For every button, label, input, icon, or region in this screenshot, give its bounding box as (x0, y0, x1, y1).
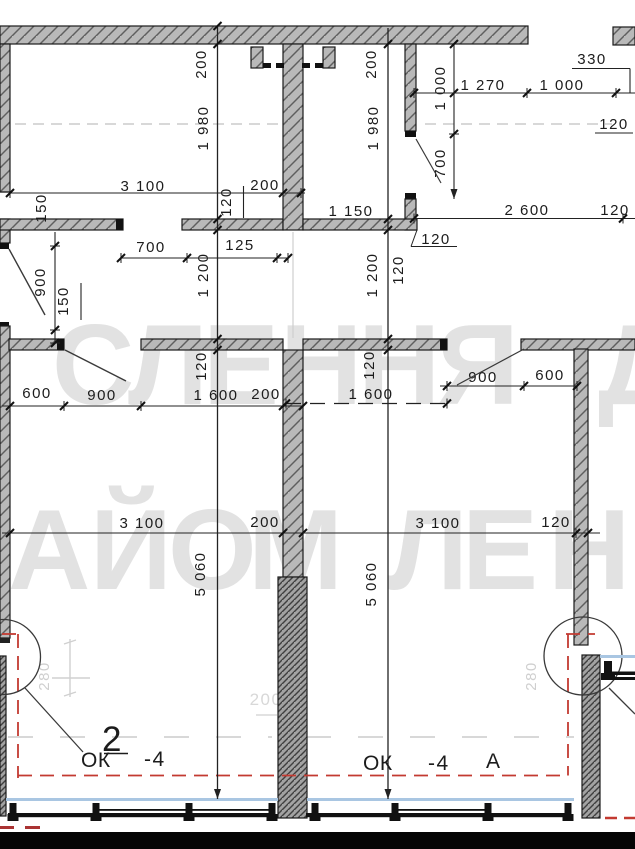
svg-text:120: 120 (193, 351, 210, 381)
svg-text:1 270: 1 270 (460, 77, 505, 94)
svg-text:600: 600 (22, 385, 52, 402)
svg-text:150: 150 (55, 286, 72, 316)
svg-text:200: 200 (251, 386, 281, 403)
svg-text:1 980: 1 980 (195, 105, 212, 150)
svg-text:900: 900 (87, 387, 117, 404)
svg-text:1 600: 1 600 (193, 387, 238, 404)
svg-text:900: 900 (32, 267, 49, 297)
svg-text:1 200: 1 200 (195, 252, 212, 297)
svg-text:-4: -4 (144, 748, 166, 771)
svg-text:1 150: 1 150 (328, 203, 373, 220)
svg-text:120: 120 (421, 231, 451, 248)
svg-text:200: 200 (250, 177, 280, 194)
svg-text:3 100: 3 100 (415, 515, 460, 532)
svg-text:1 000: 1 000 (539, 77, 584, 94)
svg-text:5 060: 5 060 (363, 561, 380, 606)
svg-text:600: 600 (535, 367, 565, 384)
svg-text:200: 200 (363, 49, 380, 79)
svg-text:280: 280 (523, 661, 540, 691)
svg-text:3 100: 3 100 (119, 515, 164, 532)
svg-text:120: 120 (600, 202, 630, 219)
svg-text:700: 700 (432, 148, 449, 178)
svg-text:1 600: 1 600 (348, 386, 393, 403)
svg-text:150: 150 (33, 193, 50, 223)
svg-text:3 100: 3 100 (120, 178, 165, 195)
svg-text:200: 200 (193, 49, 210, 79)
svg-text:1 980: 1 980 (365, 105, 382, 150)
svg-text:120: 120 (541, 514, 571, 531)
svg-text:А: А (486, 750, 502, 773)
svg-text:120: 120 (361, 350, 378, 380)
svg-text:120: 120 (390, 255, 407, 285)
svg-text:АЙОМЛЕН: АЙОМЛЕН (8, 486, 630, 614)
svg-text:2 600: 2 600 (504, 202, 549, 219)
svg-text:280: 280 (36, 661, 53, 691)
svg-text:120: 120 (599, 116, 629, 133)
svg-text:330: 330 (577, 51, 607, 68)
svg-text:-4: -4 (428, 752, 450, 775)
svg-text:125: 125 (225, 237, 255, 254)
svg-text:120: 120 (218, 187, 235, 217)
svg-text:700: 700 (136, 239, 166, 256)
svg-text:1 200: 1 200 (364, 252, 381, 297)
svg-text:1 000: 1 000 (432, 65, 449, 110)
svg-text:200: 200 (250, 514, 280, 531)
svg-text:5 060: 5 060 (192, 551, 209, 596)
svg-text:ОК: ОК (363, 752, 393, 775)
